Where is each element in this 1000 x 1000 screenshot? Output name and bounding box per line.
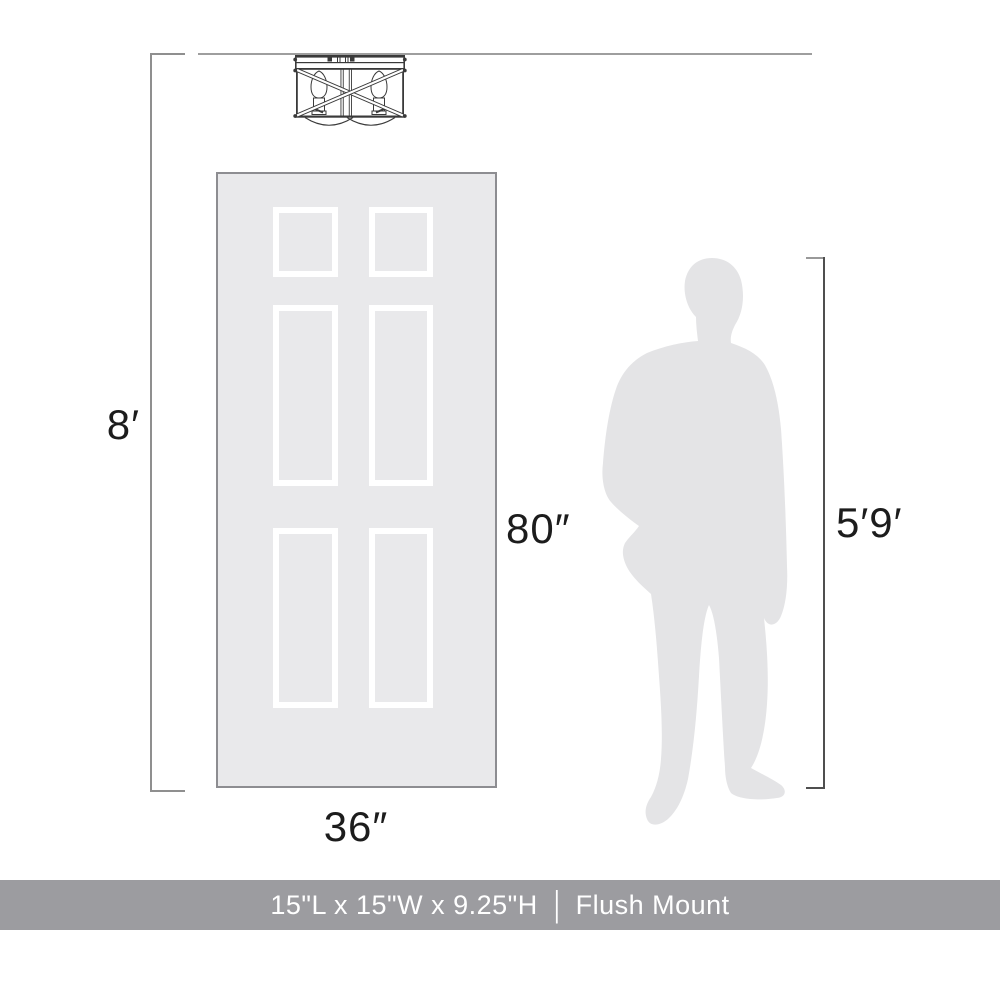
door-illustration <box>216 172 497 788</box>
door-panel <box>273 305 338 486</box>
person-silhouette <box>600 256 790 830</box>
door-height-label: 80″ <box>506 508 571 550</box>
door-panel <box>369 305 433 486</box>
door-panel <box>273 528 338 708</box>
door-panel <box>273 207 338 277</box>
door-panel <box>369 528 433 708</box>
footer-bar: 15"L x 15"W x 9.25"H | Flush Mount <box>0 880 1000 930</box>
person-dimension-bottom-tick <box>806 787 825 789</box>
footer-separator: | <box>554 883 560 925</box>
person-height-label: 5′9′ <box>836 502 902 544</box>
footer-mount-type: Flush Mount <box>576 890 730 921</box>
ceiling-height-label: 8′ <box>62 404 140 446</box>
ceiling-height-dimension-line <box>150 53 152 792</box>
ceiling-line <box>198 53 812 55</box>
flush-mount-light-icon <box>292 50 408 134</box>
door-panel <box>369 207 433 277</box>
ceiling-dimension-bottom-tick <box>150 790 185 792</box>
door-width-label: 36″ <box>306 806 406 848</box>
ceiling-dimension-top-tick <box>150 53 185 55</box>
dimension-diagram: 8′ <box>0 0 1000 1000</box>
person-height-dimension-line <box>823 257 825 789</box>
footer-dimensions-text: 15"L x 15"W x 9.25"H <box>270 890 537 921</box>
